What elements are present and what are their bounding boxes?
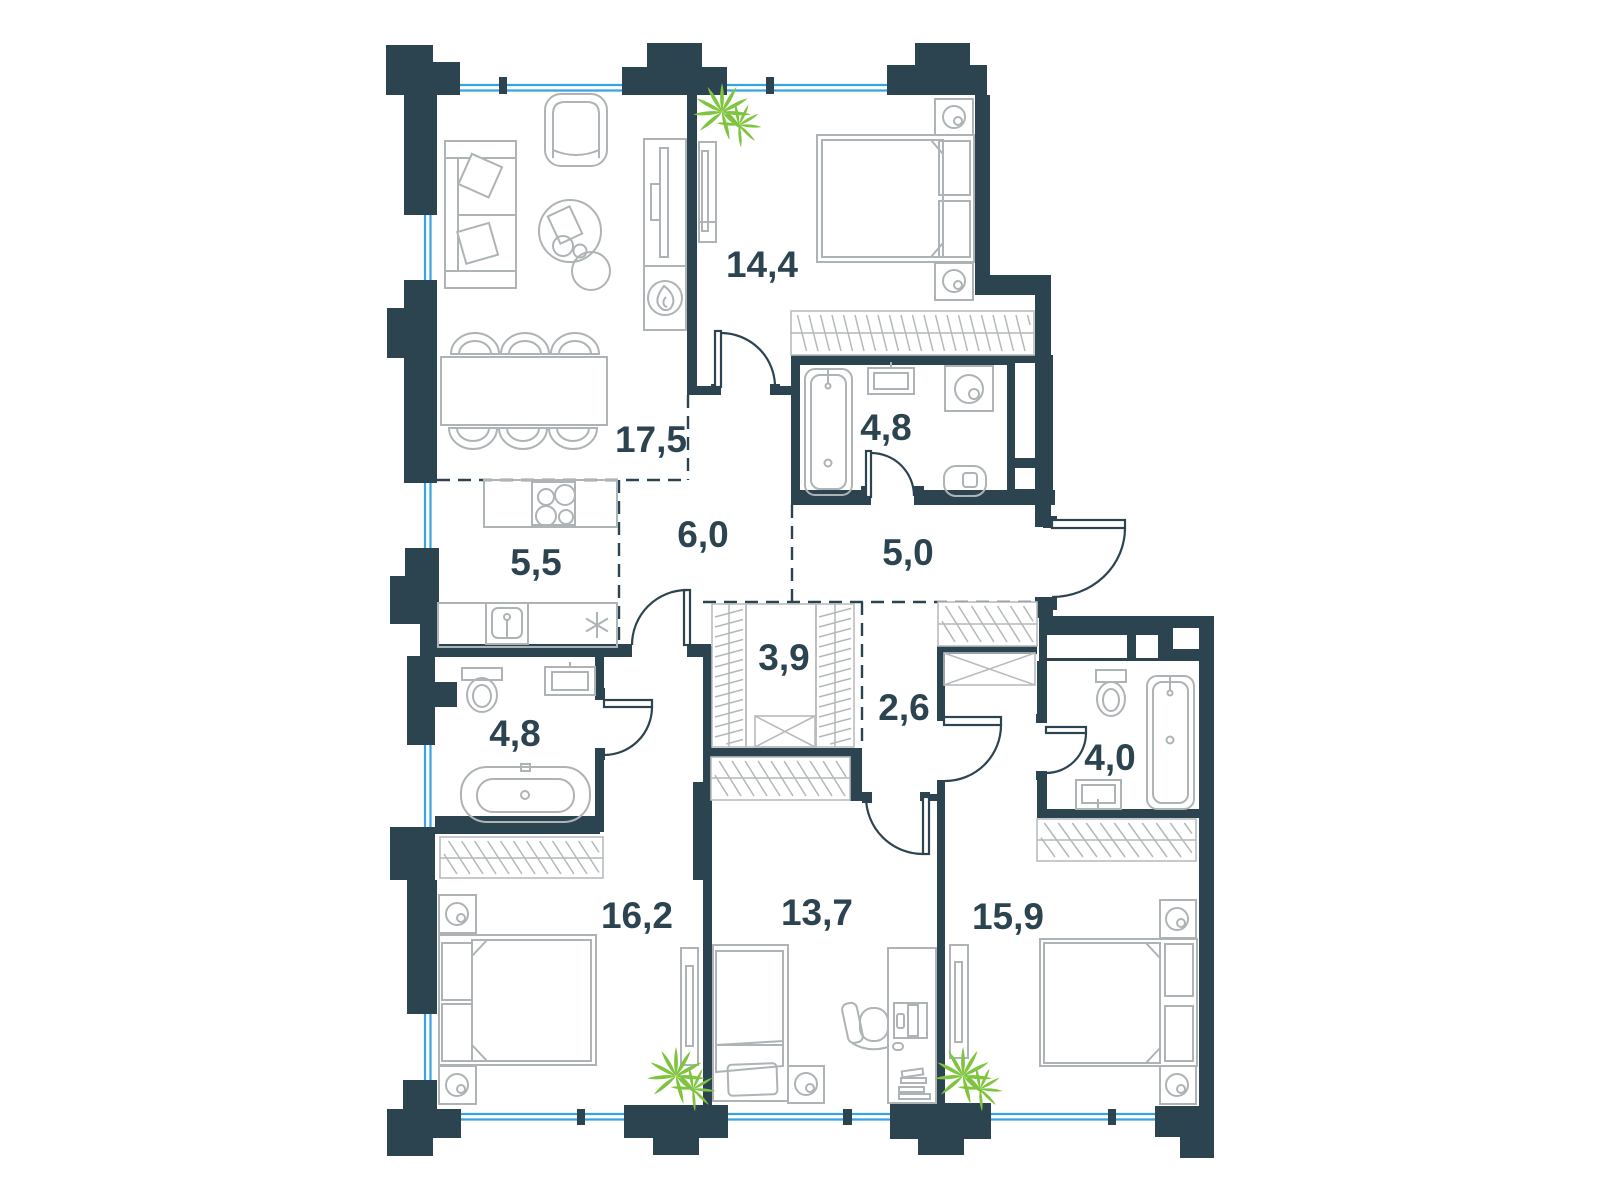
svg-text:3,9: 3,9 <box>758 637 809 678</box>
svg-text:2,6: 2,6 <box>878 687 929 728</box>
svg-text:17,5: 17,5 <box>615 419 687 460</box>
svg-text:4,8: 4,8 <box>489 713 540 754</box>
svg-text:5,5: 5,5 <box>510 542 561 583</box>
svg-text:4,8: 4,8 <box>860 407 911 448</box>
svg-text:5,0: 5,0 <box>882 532 933 573</box>
svg-text:14,4: 14,4 <box>726 244 798 285</box>
svg-text:16,2: 16,2 <box>601 895 673 936</box>
svg-text:6,0: 6,0 <box>677 514 728 555</box>
svg-text:15,9: 15,9 <box>972 896 1044 937</box>
svg-text:13,7: 13,7 <box>781 892 853 933</box>
svg-text:4,0: 4,0 <box>1084 737 1135 778</box>
